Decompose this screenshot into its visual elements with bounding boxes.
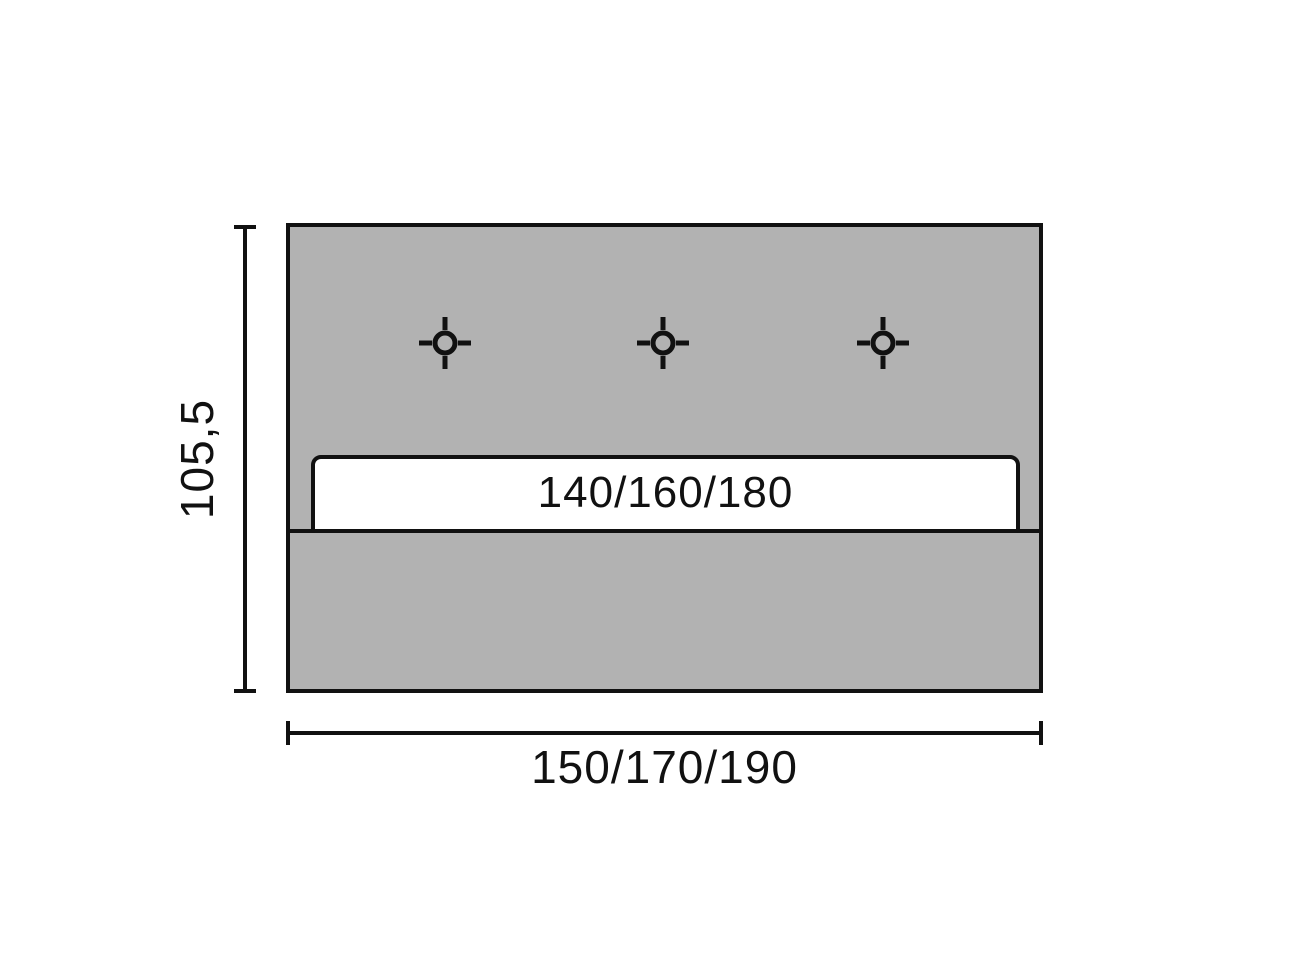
height-dimension-cap-bottom — [234, 689, 256, 693]
width-dimension-label: 150/170/190 — [286, 740, 1043, 794]
crosshair-marker-icon — [637, 317, 689, 369]
crosshair-marker-icon — [419, 317, 471, 369]
height-dimension-cap-top — [234, 225, 256, 229]
crosshair-marker-icon — [857, 317, 909, 369]
dimension-diagram: 140/160/180 105,5 150/170/190 — [0, 0, 1300, 975]
height-dimension-line — [243, 225, 247, 693]
inner-width-bar: 140/160/180 — [311, 455, 1020, 533]
inner-width-label: 140/160/180 — [538, 468, 794, 518]
height-dimension-label: 105,5 — [170, 399, 224, 519]
width-dimension-line — [286, 731, 1043, 735]
